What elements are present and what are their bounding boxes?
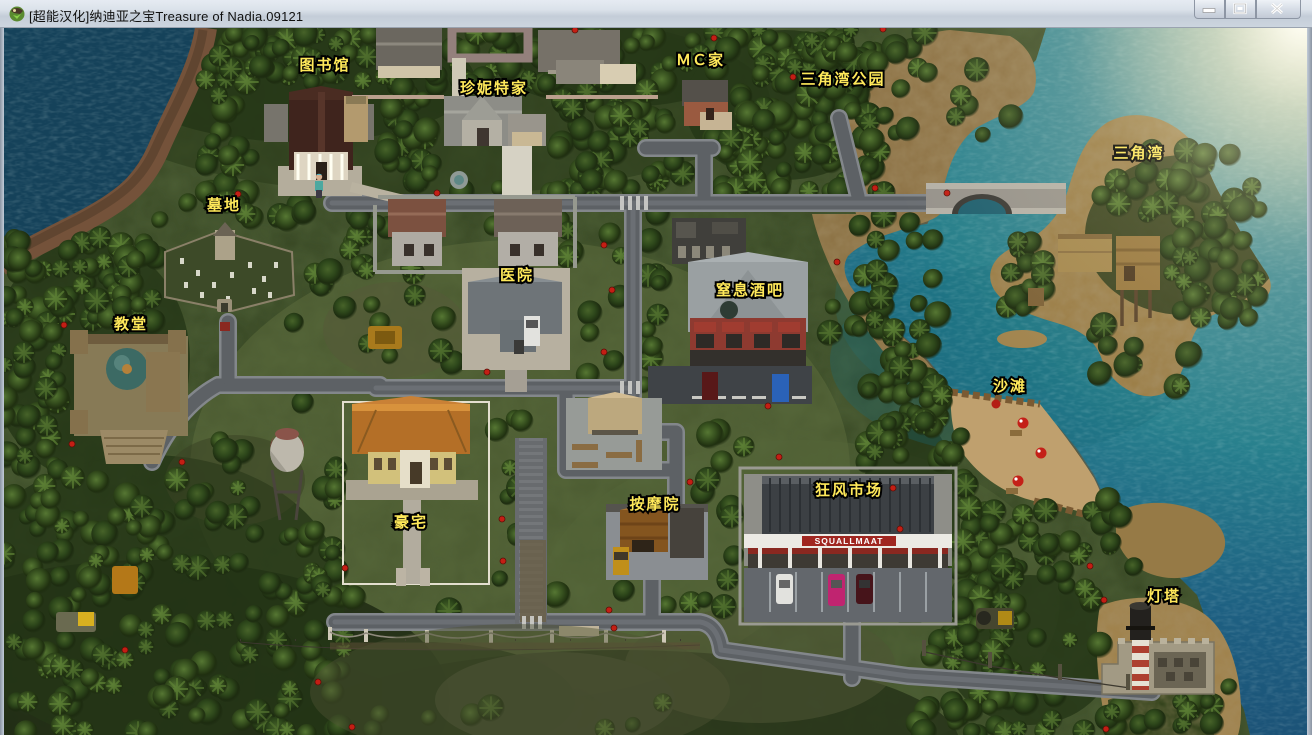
- svg-text:ＭＣ家: ＭＣ家: [676, 51, 724, 69]
- svg-text:医院: 医院: [500, 266, 534, 284]
- svg-text:珍妮特家: 珍妮特家: [460, 79, 528, 97]
- svg-text:图书馆: 图书馆: [299, 56, 350, 74]
- svg-text:灯塔: 灯塔: [1147, 587, 1181, 605]
- svg-text:墓地: 墓地: [206, 196, 241, 214]
- svg-text:SQUALLMAAT: SQUALLMAAT: [815, 536, 884, 546]
- svg-text:沙滩: 沙滩: [993, 377, 1027, 395]
- svg-text:按摩院: 按摩院: [629, 495, 680, 513]
- svg-text:豪宅: 豪宅: [394, 513, 428, 531]
- svg-text:狂风市场: 狂风市场: [815, 481, 883, 499]
- svg-text:窒息酒吧: 窒息酒吧: [716, 281, 784, 299]
- svg-text:教堂: 教堂: [113, 315, 148, 333]
